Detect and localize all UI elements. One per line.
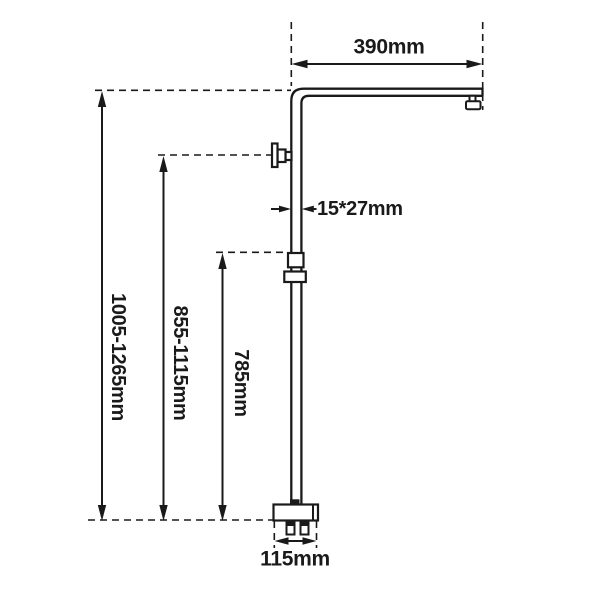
dim-pipe-section (271, 206, 317, 213)
dim-holder-height (159, 156, 167, 521)
base-valve-body (274, 499, 319, 520)
riser-pipe (301, 96, 482, 505)
dim-label-holder-height: 855-1115mm (170, 306, 190, 421)
dim-label-overall-height: 1005-1265mm (108, 293, 128, 421)
extension-lines (88, 22, 483, 548)
dimension-diagram: 390mm 15*27mm 1005-1265mm 855-1115mm 785… (0, 0, 610, 610)
diagram-drawing (0, 0, 610, 610)
dim-label-base-width: 115mm (260, 549, 330, 570)
shower-arm (291, 89, 482, 505)
dim-base-width (275, 537, 317, 545)
base-inlet-legs (287, 521, 309, 535)
hand-shower-outlet (466, 96, 481, 109)
shower-holder-knob (272, 144, 292, 168)
slider-bracket (284, 253, 306, 282)
dim-overall-height (98, 91, 106, 521)
dim-slider-height (218, 253, 226, 521)
dim-label-slider-height: 785mm (231, 349, 251, 416)
dim-label-pipe-section: 15*27mm (317, 199, 403, 219)
dim-label-arm-width: 390mm (354, 37, 425, 58)
dim-arm-width (292, 60, 483, 68)
